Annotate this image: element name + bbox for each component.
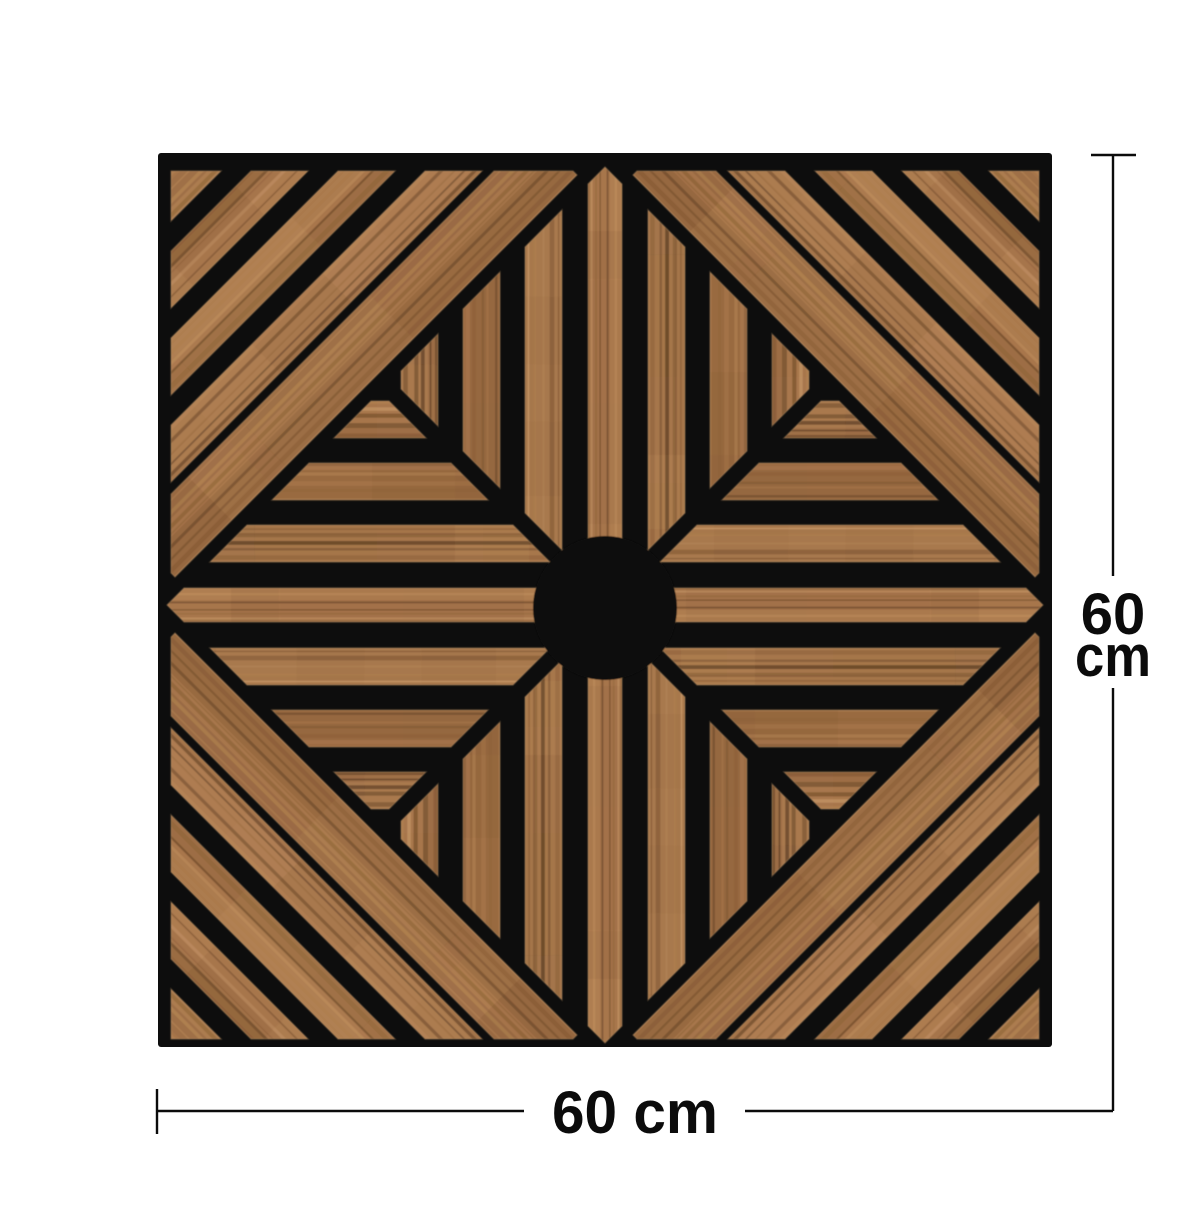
svg-text:60 cm: 60 cm bbox=[552, 1079, 718, 1146]
svg-text:cm: cm bbox=[1075, 624, 1151, 689]
